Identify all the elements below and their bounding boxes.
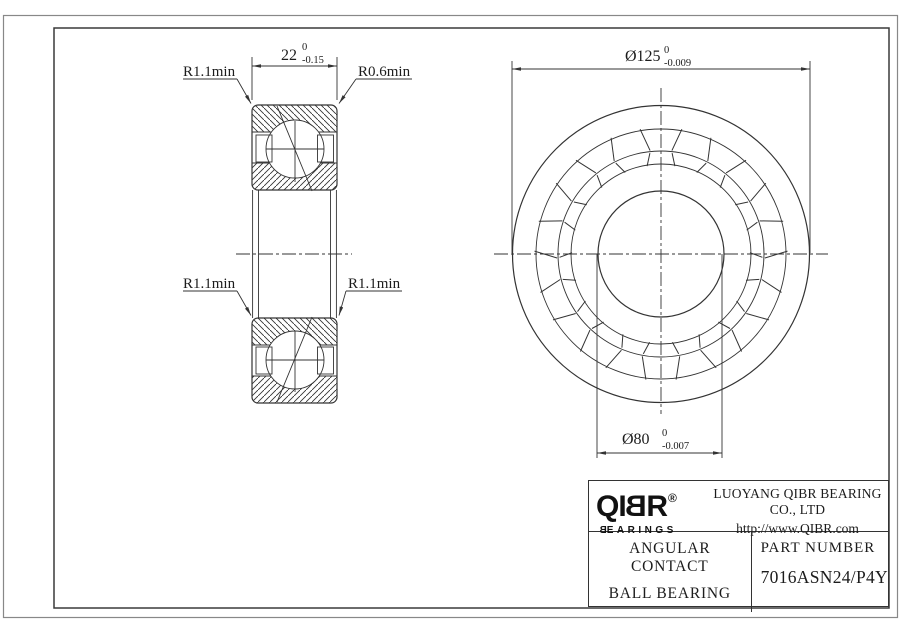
section-lower-half	[252, 317, 337, 403]
product-type-line2: BALL BEARING	[589, 585, 751, 603]
company-cell: LUOYANG QIBR BEARING CO., LTD http://www…	[707, 481, 888, 531]
brand-wordmark: QIBR	[596, 490, 667, 523]
product-type-cell: ANGULAR CONTACT BALL BEARING	[589, 532, 752, 612]
part-number-label: PART NUMBER	[761, 540, 888, 557]
fillet-callout-mid-right: R1.1min	[339, 276, 402, 316]
fillet-callout-top-left: R1.1min	[183, 64, 251, 104]
brand-logo: QIBR® BEARINGS	[589, 481, 707, 531]
svg-text:R0.6min: R0.6min	[358, 64, 411, 80]
company-name: LUOYANG QIBR BEARING CO., LTD	[707, 486, 888, 518]
od-tol-lower: -0.009	[664, 58, 691, 69]
part-number-value: 7016ASN24/P4Y	[761, 567, 888, 588]
width-tol-lower: -0.15	[302, 55, 324, 66]
title-block-bottom-row: ANGULAR CONTACT BALL BEARING PART NUMBER…	[589, 532, 888, 612]
od-value: Ø125	[625, 48, 661, 65]
svg-text:R1.1min: R1.1min	[348, 276, 401, 292]
section-view: 22 0 -0.15	[183, 42, 412, 403]
engineering-drawing-sheet: 22 0 -0.15	[0, 0, 900, 636]
front-view: Ø125 0 -0.009 Ø80 0 -0.007	[494, 45, 828, 458]
product-type-line1: ANGULAR CONTACT	[589, 540, 751, 576]
bore-tol-lower: -0.007	[662, 441, 689, 452]
section-upper-half	[252, 105, 337, 191]
part-number-cell: PART NUMBER 7016ASN24/P4Y	[752, 532, 888, 612]
fillet-callout-mid-left: R1.1min	[183, 276, 251, 316]
svg-text:R1.1min: R1.1min	[183, 276, 236, 292]
title-block-header-row: QIBR® BEARINGS LUOYANG QIBR BEARING CO.,…	[589, 481, 888, 532]
od-tol-upper: 0	[664, 45, 669, 56]
width-value: 22	[281, 47, 297, 64]
svg-text:R1.1min: R1.1min	[183, 64, 236, 80]
bore-tol-upper: 0	[662, 428, 667, 439]
fillet-callout-top-right: R0.6min	[339, 64, 412, 104]
registered-trademark-icon: ®	[668, 491, 677, 505]
width-tol-upper: 0	[302, 42, 307, 53]
bore-value: Ø80	[622, 431, 650, 448]
title-block: QIBR® BEARINGS LUOYANG QIBR BEARING CO.,…	[588, 480, 889, 607]
width-dimension: 22 0 -0.15	[252, 42, 337, 100]
